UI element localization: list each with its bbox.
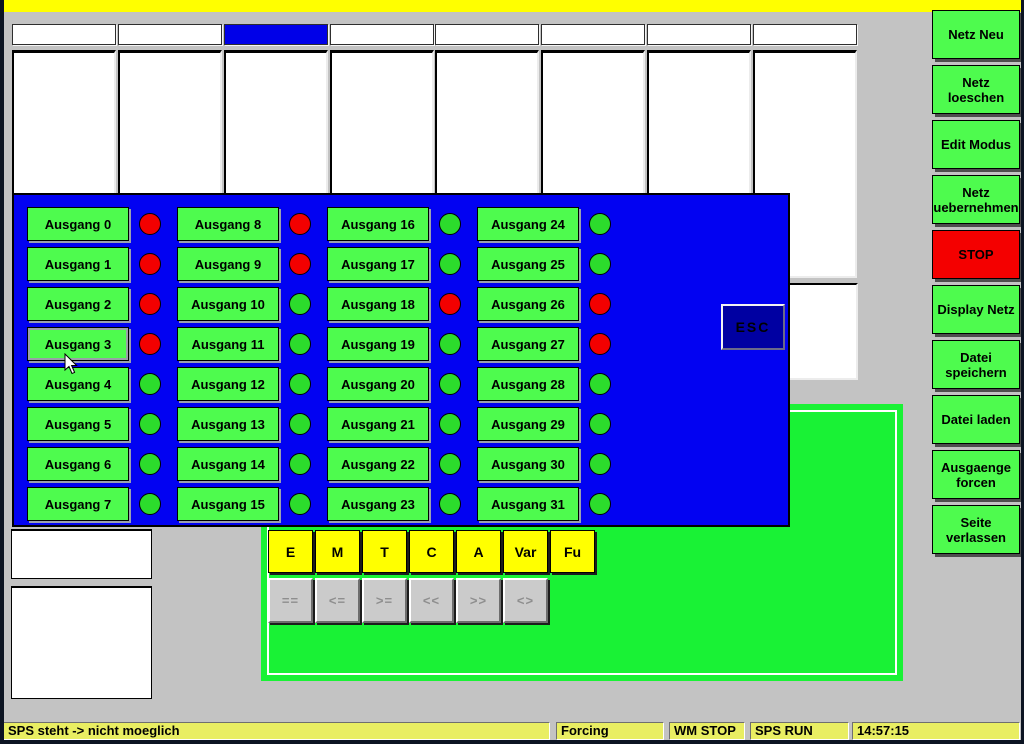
type-button-c[interactable]: C xyxy=(409,530,454,573)
output-button-9[interactable]: Ausgang 9 xyxy=(177,247,279,281)
output-column-3: Ausgang 16Ausgang 17Ausgang 18Ausgang 19… xyxy=(327,207,461,521)
tab-cell-4[interactable] xyxy=(330,24,434,45)
output-led-5 xyxy=(139,413,161,435)
output-row: Ausgang 18 xyxy=(327,287,461,321)
seite-verlassen-button[interactable]: Seite verlassen xyxy=(932,505,1020,554)
edit-modus-button[interactable]: Edit Modus xyxy=(932,120,1020,169)
output-row: Ausgang 23 xyxy=(327,487,461,521)
netz-neu-button[interactable]: Netz Neu xyxy=(932,10,1020,59)
output-led-17 xyxy=(439,253,461,275)
output-led-28 xyxy=(589,373,611,395)
output-button-11[interactable]: Ausgang 11 xyxy=(177,327,279,361)
operator-button-0: == xyxy=(268,578,313,623)
output-led-21 xyxy=(439,413,461,435)
datei-speichern-button[interactable]: Datei speichern xyxy=(932,340,1020,389)
operator-button-3: << xyxy=(409,578,454,623)
output-row: Ausgang 4 xyxy=(27,367,161,401)
output-led-25 xyxy=(589,253,611,275)
output-led-12 xyxy=(289,373,311,395)
output-row: Ausgang 22 xyxy=(327,447,461,481)
output-row: Ausgang 19 xyxy=(327,327,461,361)
output-led-16 xyxy=(439,213,461,235)
output-led-26 xyxy=(589,293,611,315)
type-button-fu[interactable]: Fu xyxy=(550,530,595,573)
screen-edge-bottom xyxy=(0,740,1024,744)
output-button-21[interactable]: Ausgang 21 xyxy=(327,407,429,441)
tab-cell-6[interactable] xyxy=(541,24,645,45)
status-segment-3: SPS RUN xyxy=(750,722,849,740)
output-column-2: Ausgang 8Ausgang 9Ausgang 10Ausgang 11Au… xyxy=(177,207,311,521)
mouse-cursor xyxy=(64,353,80,375)
output-button-13[interactable]: Ausgang 13 xyxy=(177,407,279,441)
output-button-28[interactable]: Ausgang 28 xyxy=(477,367,579,401)
output-led-11 xyxy=(289,333,311,355)
output-led-18 xyxy=(439,293,461,315)
output-led-7 xyxy=(139,493,161,515)
output-row: Ausgang 30 xyxy=(477,447,611,481)
operator-button-1: <= xyxy=(315,578,360,623)
output-row: Ausgang 6 xyxy=(27,447,161,481)
tab-cell-1[interactable] xyxy=(12,24,116,45)
esc-button[interactable]: ESC xyxy=(721,304,785,350)
output-button-22[interactable]: Ausgang 22 xyxy=(327,447,429,481)
output-button-7[interactable]: Ausgang 7 xyxy=(27,487,129,521)
output-row: Ausgang 10 xyxy=(177,287,311,321)
output-led-29 xyxy=(589,413,611,435)
app-screen: EMTCAVarFu ==<=>=<<>><> Ausgang 0Ausgang… xyxy=(0,0,1024,744)
output-button-27[interactable]: Ausgang 27 xyxy=(477,327,579,361)
output-row: Ausgang 7 xyxy=(27,487,161,521)
type-button-m[interactable]: M xyxy=(315,530,360,573)
output-row: Ausgang 8 xyxy=(177,207,311,241)
netz-loeschen-button[interactable]: Netz loeschen xyxy=(932,65,1020,114)
tab-cell-3[interactable] xyxy=(224,24,328,45)
output-button-17[interactable]: Ausgang 17 xyxy=(327,247,429,281)
output-button-20[interactable]: Ausgang 20 xyxy=(327,367,429,401)
output-button-1[interactable]: Ausgang 1 xyxy=(27,247,129,281)
type-button-var[interactable]: Var xyxy=(503,530,548,573)
netz-uebernehmen-button[interactable]: Netz uebernehmen xyxy=(932,175,1020,224)
output-row: Ausgang 0 xyxy=(27,207,161,241)
status-segment-1: Forcing xyxy=(556,722,664,740)
output-button-8[interactable]: Ausgang 8 xyxy=(177,207,279,241)
output-led-30 xyxy=(589,453,611,475)
output-row: Ausgang 14 xyxy=(177,447,311,481)
status-segment-4: 14:57:15 xyxy=(852,722,1020,740)
output-button-19[interactable]: Ausgang 19 xyxy=(327,327,429,361)
display-netz-button[interactable]: Display Netz xyxy=(932,285,1020,334)
output-button-31[interactable]: Ausgang 31 xyxy=(477,487,579,521)
operand-box-2 xyxy=(11,586,152,699)
output-row: Ausgang 28 xyxy=(477,367,611,401)
operand-box-1 xyxy=(11,529,152,579)
title-bar xyxy=(4,0,1021,12)
output-row: Ausgang 13 xyxy=(177,407,311,441)
output-row: Ausgang 27 xyxy=(477,327,611,361)
output-led-27 xyxy=(589,333,611,355)
status-bar: SPS steht -> nicht moeglichForcingWM STO… xyxy=(0,722,1024,740)
output-row: Ausgang 31 xyxy=(477,487,611,521)
tab-cell-8[interactable] xyxy=(753,24,857,45)
type-button-t[interactable]: T xyxy=(362,530,407,573)
output-button-30[interactable]: Ausgang 30 xyxy=(477,447,579,481)
datei-laden-button[interactable]: Datei laden xyxy=(932,395,1020,444)
output-led-31 xyxy=(589,493,611,515)
output-button-23[interactable]: Ausgang 23 xyxy=(327,487,429,521)
output-led-8 xyxy=(289,213,311,235)
screen-edge-left xyxy=(0,0,4,744)
output-led-10 xyxy=(289,293,311,315)
comparison-operator-toolbar: ==<=>=<<>><> xyxy=(268,578,548,623)
output-led-14 xyxy=(289,453,311,475)
tab-cell-7[interactable] xyxy=(647,24,751,45)
output-button-18[interactable]: Ausgang 18 xyxy=(327,287,429,321)
output-button-16[interactable]: Ausgang 16 xyxy=(327,207,429,241)
operator-button-4: >> xyxy=(456,578,501,623)
output-button-12[interactable]: Ausgang 12 xyxy=(177,367,279,401)
output-led-15 xyxy=(289,493,311,515)
output-led-22 xyxy=(439,453,461,475)
output-button-25[interactable]: Ausgang 25 xyxy=(477,247,579,281)
output-led-13 xyxy=(289,413,311,435)
output-led-20 xyxy=(439,373,461,395)
sidebar: Netz NeuNetz loeschenEdit ModusNetz uebe… xyxy=(932,10,1020,554)
type-button-e[interactable]: E xyxy=(268,530,313,573)
ausgaenge-forcen-button[interactable]: Ausgaenge forcen xyxy=(932,450,1020,499)
output-row: Ausgang 25 xyxy=(477,247,611,281)
output-row: Ausgang 16 xyxy=(327,207,461,241)
output-row: Ausgang 1 xyxy=(27,247,161,281)
output-row: Ausgang 24 xyxy=(477,207,611,241)
stop-button[interactable]: STOP xyxy=(932,230,1020,279)
tab-cell-2[interactable] xyxy=(118,24,222,45)
output-led-3 xyxy=(139,333,161,355)
tab-cell-5[interactable] xyxy=(435,24,539,45)
status-segment-2: WM STOP xyxy=(669,722,745,740)
output-row: Ausgang 3 xyxy=(27,327,161,361)
output-button-15[interactable]: Ausgang 15 xyxy=(177,487,279,521)
output-led-6 xyxy=(139,453,161,475)
output-led-9 xyxy=(289,253,311,275)
output-led-0 xyxy=(139,213,161,235)
output-button-0[interactable]: Ausgang 0 xyxy=(27,207,129,241)
output-row: Ausgang 20 xyxy=(327,367,461,401)
output-row: Ausgang 11 xyxy=(177,327,311,361)
operator-button-2: >= xyxy=(362,578,407,623)
output-row: Ausgang 21 xyxy=(327,407,461,441)
output-button-5[interactable]: Ausgang 5 xyxy=(27,407,129,441)
output-row: Ausgang 26 xyxy=(477,287,611,321)
output-row: Ausgang 5 xyxy=(27,407,161,441)
output-row: Ausgang 2 xyxy=(27,287,161,321)
output-led-2 xyxy=(139,293,161,315)
output-button-6[interactable]: Ausgang 6 xyxy=(27,447,129,481)
output-button-26[interactable]: Ausgang 26 xyxy=(477,287,579,321)
output-row: Ausgang 12 xyxy=(177,367,311,401)
output-row: Ausgang 17 xyxy=(327,247,461,281)
output-led-19 xyxy=(439,333,461,355)
operand-type-toolbar: EMTCAVarFu xyxy=(268,530,595,573)
output-row: Ausgang 9 xyxy=(177,247,311,281)
output-button-2[interactable]: Ausgang 2 xyxy=(27,287,129,321)
output-button-24[interactable]: Ausgang 24 xyxy=(477,207,579,241)
output-led-1 xyxy=(139,253,161,275)
output-button-10[interactable]: Ausgang 10 xyxy=(177,287,279,321)
output-column-1: Ausgang 0Ausgang 1Ausgang 2Ausgang 3Ausg… xyxy=(27,207,161,521)
output-row: Ausgang 29 xyxy=(477,407,611,441)
status-segment-0: SPS steht -> nicht moeglich xyxy=(3,722,550,740)
output-led-4 xyxy=(139,373,161,395)
output-button-14[interactable]: Ausgang 14 xyxy=(177,447,279,481)
output-row: Ausgang 15 xyxy=(177,487,311,521)
type-button-a[interactable]: A xyxy=(456,530,501,573)
operator-button-5: <> xyxy=(503,578,548,623)
output-button-29[interactable]: Ausgang 29 xyxy=(477,407,579,441)
output-led-24 xyxy=(589,213,611,235)
force-outputs-dialog: Ausgang 0Ausgang 1Ausgang 2Ausgang 3Ausg… xyxy=(12,193,790,527)
output-column-4: Ausgang 24Ausgang 25Ausgang 26Ausgang 27… xyxy=(477,207,611,521)
output-led-23 xyxy=(439,493,461,515)
